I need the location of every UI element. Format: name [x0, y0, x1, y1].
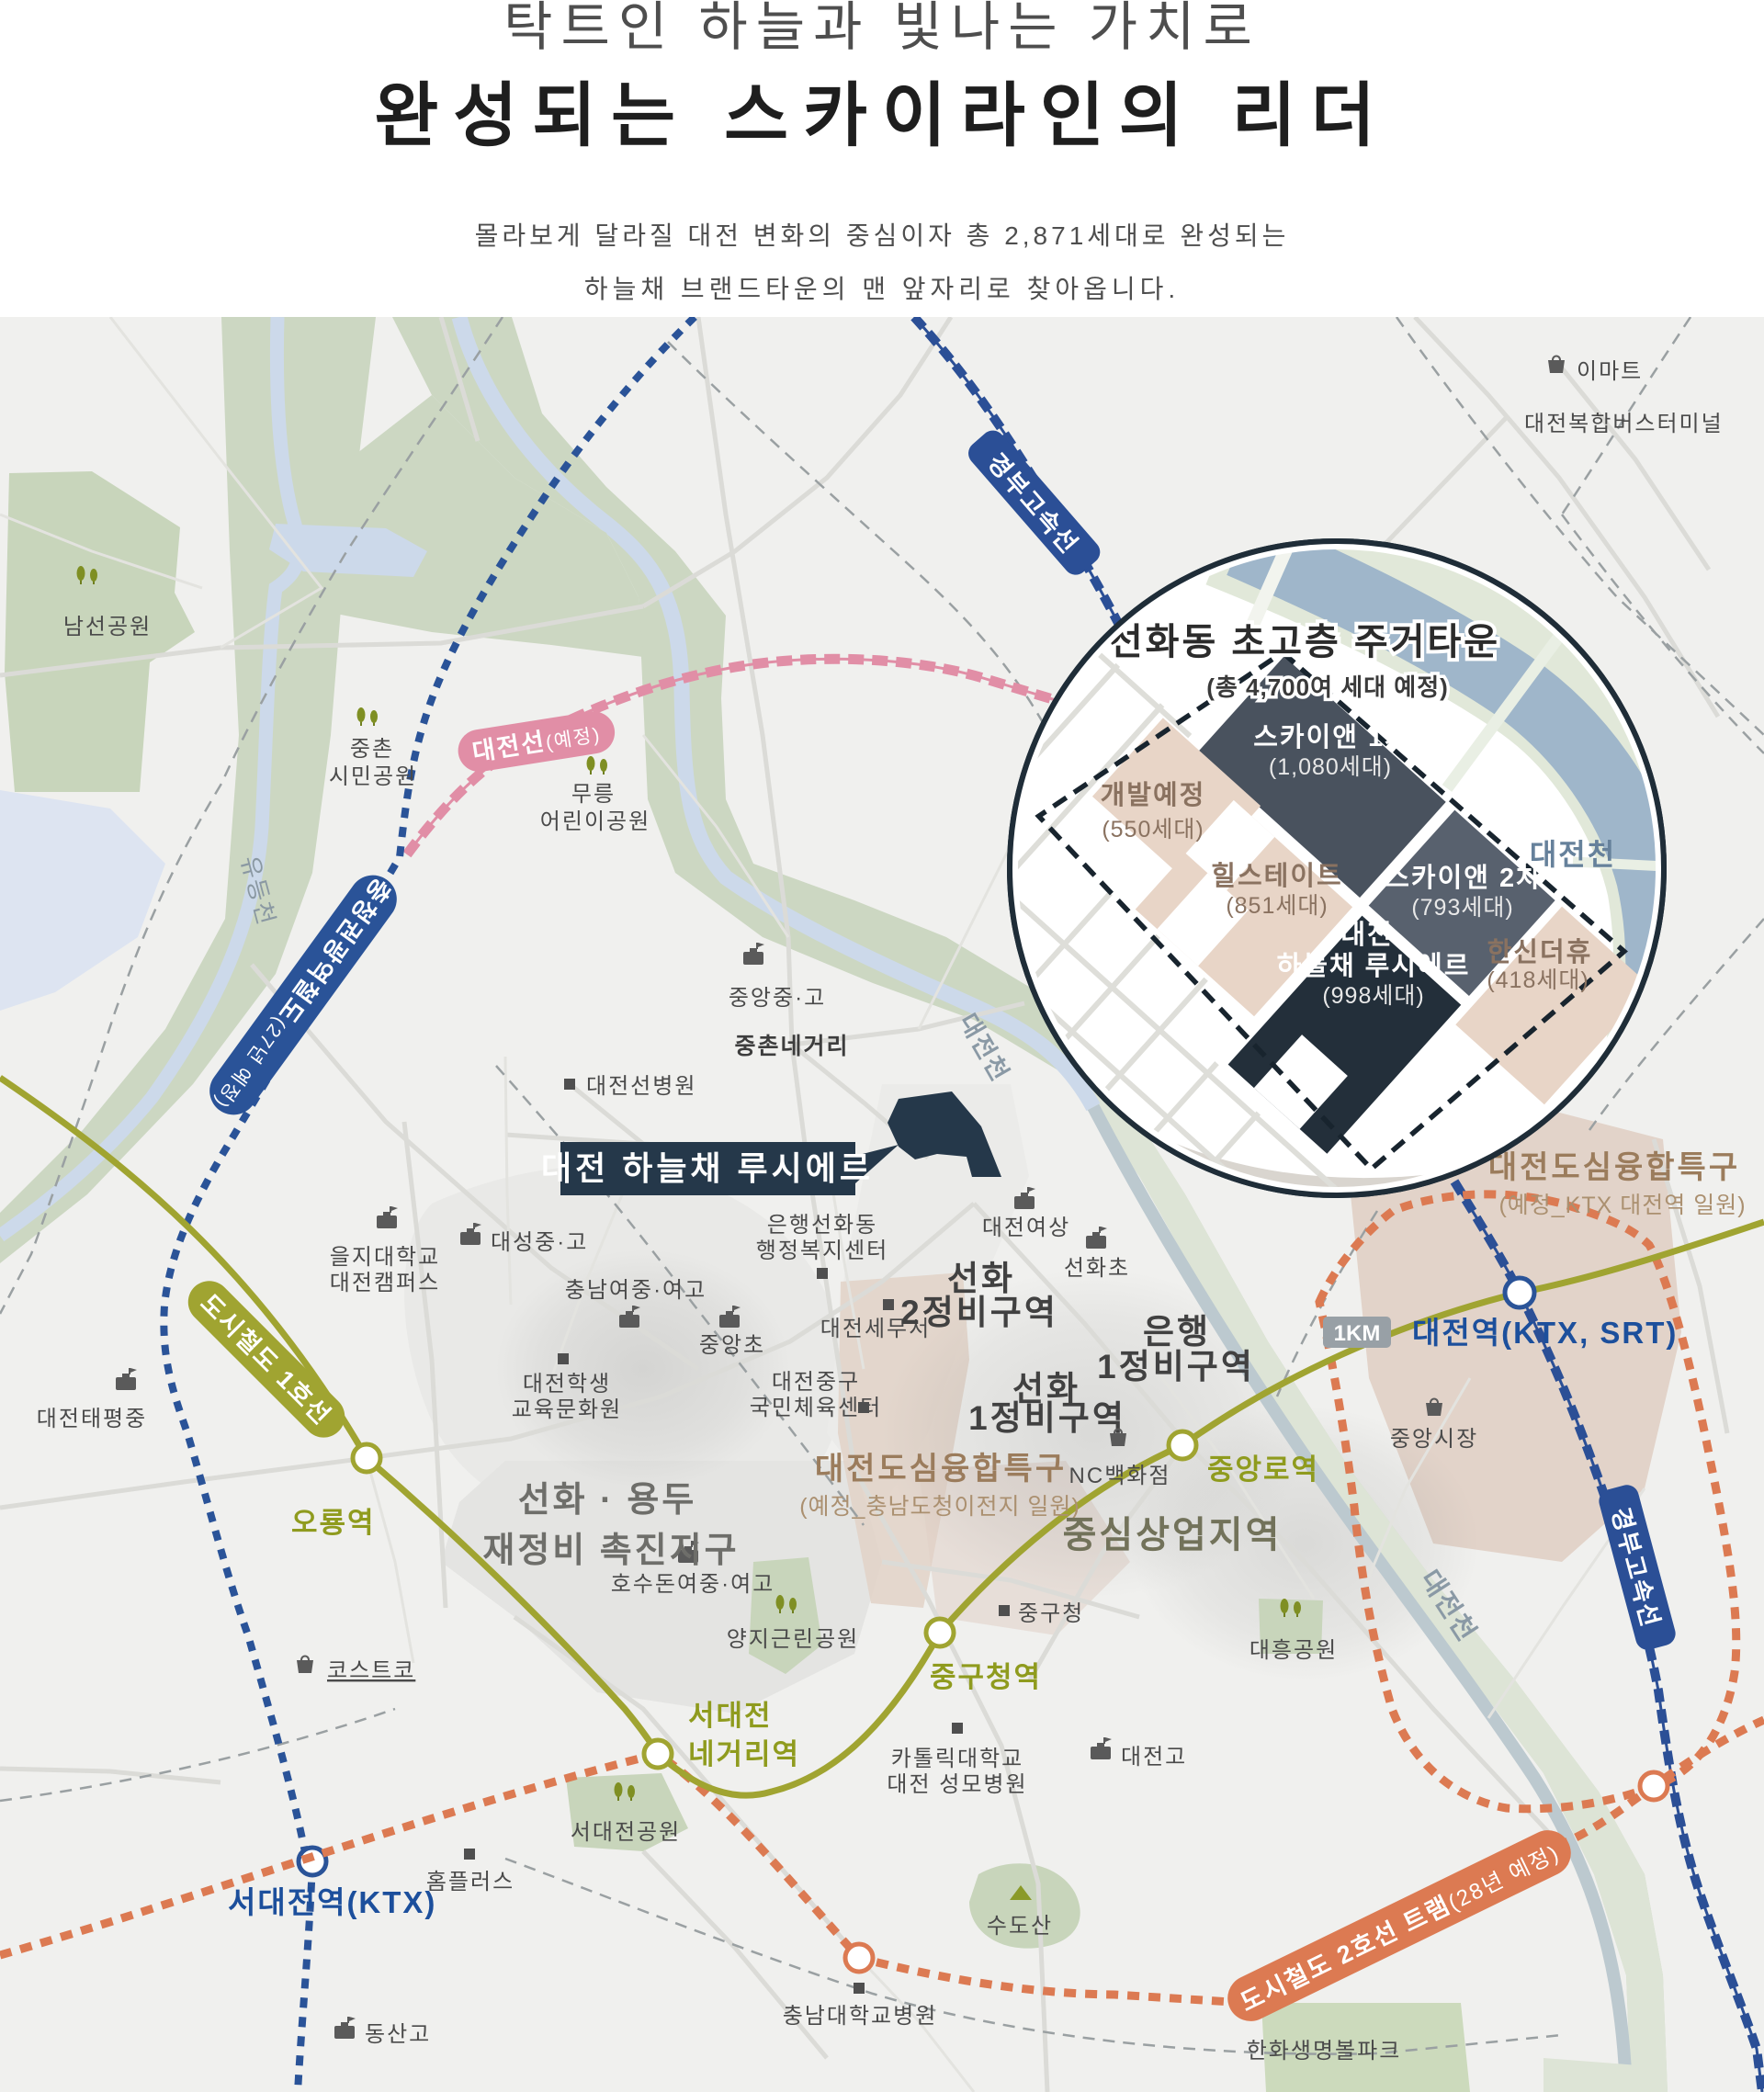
svg-text:(예정_충남도청이전지 일원): (예정_충남도청이전지 일원)	[799, 1494, 1080, 1520]
svg-text:(793세대): (793세대)	[1411, 895, 1513, 921]
svg-text:선화초: 선화초	[1064, 1256, 1130, 1281]
svg-text:NC백화점: NC백화점	[1069, 1464, 1171, 1488]
svg-text:스카이앤 2차: 스카이앤 2차	[1385, 863, 1543, 893]
svg-text:탁트인 하늘과 빛나는 가치로: 탁트인 하늘과 빛나는 가치로	[503, 0, 1261, 57]
svg-text:호수돈여중·여고: 호수돈여중·여고	[611, 1572, 775, 1597]
svg-text:1정비구역: 1정비구역	[968, 1399, 1126, 1437]
svg-text:중앙로역: 중앙로역	[1207, 1453, 1319, 1486]
svg-text:시민공원: 시민공원	[329, 764, 417, 789]
svg-text:1KM: 1KM	[1334, 1321, 1381, 1346]
svg-text:1정비구역: 1정비구역	[1097, 1348, 1255, 1385]
svg-text:(998세대): (998세대)	[1322, 983, 1424, 1009]
svg-text:대전고: 대전고	[1121, 1745, 1187, 1770]
svg-text:(851세대): (851세대)	[1226, 893, 1328, 919]
svg-text:2정비구역: 2정비구역	[900, 1294, 1058, 1331]
svg-text:하늘채 루시에르: 하늘채 루시에르	[1277, 951, 1471, 981]
svg-text:동산고: 동산고	[365, 2022, 431, 2047]
svg-text:이마트: 이마트	[1577, 359, 1643, 384]
svg-text:중촌: 중촌	[350, 737, 394, 762]
svg-text:하늘채 브랜드타운의 맨 앞자리로 찾아옵니다.: 하늘채 브랜드타운의 맨 앞자리로 찾아옵니다.	[584, 275, 1180, 303]
svg-text:대전캠퍼스: 대전캠퍼스	[330, 1271, 440, 1295]
svg-text:선화동 초고층 주거타운: 선화동 초고층 주거타운	[1109, 622, 1500, 662]
svg-text:(418세대): (418세대)	[1487, 967, 1589, 993]
svg-text:대전도심융합특구: 대전도심융합특구	[1488, 1150, 1740, 1185]
svg-text:충남대학교병원: 충남대학교병원	[783, 2004, 938, 2029]
svg-text:은행선화동: 은행선화동	[767, 1213, 877, 1238]
svg-text:대전태평중: 대전태평중	[37, 1407, 147, 1431]
svg-text:완성되는 스카이라인의 리더: 완성되는 스카이라인의 리더	[374, 77, 1389, 155]
svg-text:대전선병원: 대전선병원	[586, 1074, 696, 1099]
svg-text:수도산: 수도산	[987, 1914, 1053, 1939]
svg-text:스카이앤 1차: 스카이앤 1차	[1253, 722, 1411, 752]
svg-text:대전학생: 대전학생	[523, 1372, 611, 1397]
svg-text:무릉: 무릉	[571, 782, 616, 807]
svg-text:(예정_KTX 대전역 일원): (예정_KTX 대전역 일원)	[1498, 1193, 1746, 1218]
svg-text:중구청: 중구청	[1018, 1601, 1084, 1626]
svg-text:중앙초: 중앙초	[699, 1333, 765, 1358]
svg-text:힐스테이트: 힐스테이트	[1211, 861, 1342, 891]
svg-text:대전: 대전	[1340, 920, 1393, 950]
svg-text:중심상업지역: 중심상업지역	[1063, 1515, 1283, 1555]
svg-text:교육문화원: 교육문화원	[512, 1397, 622, 1422]
svg-text:(550세대): (550세대)	[1102, 817, 1204, 842]
svg-text:중구청역: 중구청역	[930, 1661, 1042, 1693]
svg-text:충남여중·여고: 충남여중·여고	[565, 1278, 707, 1303]
svg-text:남선공원: 남선공원	[63, 615, 152, 639]
svg-text:오룡역: 오룡역	[291, 1507, 376, 1539]
svg-text:중촌네거리: 중촌네거리	[734, 1034, 849, 1059]
svg-text:을지대학교: 을지대학교	[330, 1245, 440, 1270]
svg-text:대전여상: 대전여상	[982, 1216, 1070, 1240]
svg-text:네거리역: 네거리역	[688, 1738, 800, 1770]
svg-text:서대전역(KTX): 서대전역(KTX)	[228, 1885, 436, 1919]
svg-text:카톨릭대학교: 카톨릭대학교	[891, 1747, 1023, 1771]
svg-text:대전도심융합특구: 대전도심융합특구	[815, 1452, 1067, 1487]
svg-text:대전 성모병원: 대전 성모병원	[887, 1772, 1027, 1797]
svg-text:대전중구: 대전중구	[772, 1370, 860, 1395]
svg-text:(총 4,700여 세대 예정): (총 4,700여 세대 예정)	[1206, 673, 1449, 701]
svg-text:서대전: 서대전	[688, 1700, 773, 1732]
svg-text:선화: 선화	[947, 1260, 1015, 1297]
svg-text:대전 하늘채 루시에르: 대전 하늘채 루시에르	[541, 1149, 874, 1187]
svg-text:대성중·고: 대성중·고	[491, 1230, 588, 1255]
svg-text:서대전공원: 서대전공원	[571, 1820, 681, 1845]
svg-text:중앙중·고: 중앙중·고	[729, 986, 826, 1011]
svg-text:대전역(KTX, SRT): 대전역(KTX, SRT)	[1412, 1316, 1678, 1350]
svg-text:개발예정: 개발예정	[1101, 780, 1206, 810]
svg-text:대전천: 대전천	[1530, 838, 1616, 871]
svg-text:대흥공원: 대흥공원	[1249, 1638, 1338, 1663]
svg-text:중앙시장: 중앙시장	[1390, 1427, 1478, 1452]
svg-text:행정복지센터: 행정복지센터	[756, 1238, 888, 1263]
svg-text:양지근린공원: 양지근린공원	[727, 1627, 859, 1652]
svg-text:어린이공원: 어린이공원	[540, 809, 650, 834]
svg-text:(1,080세대): (1,080세대)	[1269, 754, 1392, 780]
svg-text:은행: 은행	[1143, 1313, 1211, 1351]
svg-text:한화생명볼파크: 한화생명볼파크	[1247, 2039, 1402, 2064]
svg-text:선화 · 용두: 선화 · 용두	[518, 1481, 697, 1520]
svg-text:홈플러스: 홈플러스	[426, 1870, 514, 1894]
svg-text:대전복합버스터미널: 대전복합버스터미널	[1524, 412, 1724, 436]
svg-text:몰라보게 달라질 대전 변화의 중심이자 총 2,871세대: 몰라보게 달라질 대전 변화의 중심이자 총 2,871세대로 완성되는	[475, 221, 1290, 250]
svg-text:코스트코: 코스트코	[327, 1658, 415, 1683]
svg-text:한신더휴: 한신더휴	[1487, 937, 1593, 967]
svg-text:재정비 촉진지구: 재정비 촉진지구	[482, 1532, 739, 1570]
